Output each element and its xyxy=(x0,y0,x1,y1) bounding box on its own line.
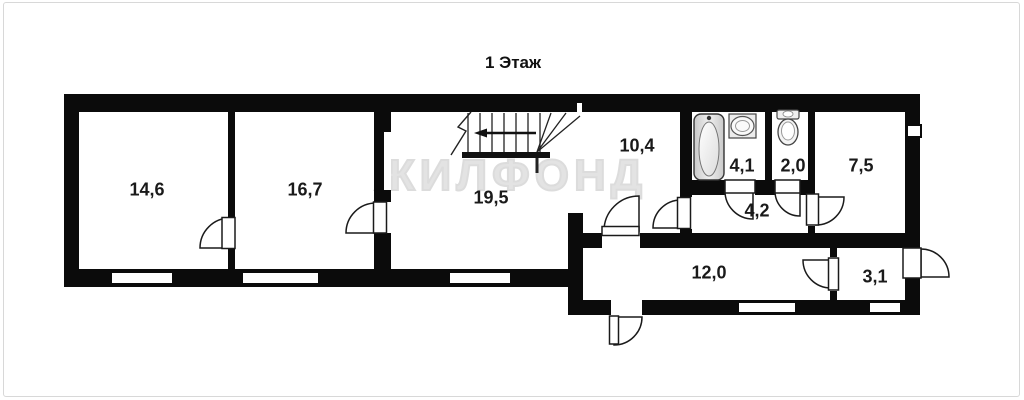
bathtub-icon xyxy=(694,114,724,180)
doorway-14-6 xyxy=(227,217,236,249)
page-title: 1 Этаж xyxy=(485,53,541,73)
door-arc-3-1-exterior xyxy=(921,249,949,277)
wall-extension-left xyxy=(568,213,583,315)
window-12-0 xyxy=(739,301,795,314)
door-arc-7-5 xyxy=(816,197,844,225)
watermark: ЖИЛФОНД xyxy=(375,151,647,201)
room-label-4-2: 4,2 xyxy=(744,201,769,222)
stair-break-line xyxy=(451,112,471,155)
doorway-4-1 xyxy=(725,179,755,196)
wall-niche-16-7-19-5 xyxy=(384,132,391,190)
room-label-12-0: 12,0 xyxy=(691,263,726,284)
floor-plan: 1 Этаж ЖИЛФОНД xyxy=(0,0,1024,400)
window-14-6 xyxy=(112,271,172,285)
wall-outer-top xyxy=(64,94,920,112)
room-label-16-7: 16,7 xyxy=(287,180,322,201)
room-label-3-1: 3,1 xyxy=(862,267,887,288)
wall-notch-top xyxy=(577,103,582,112)
doorway-3-1-exterior xyxy=(905,248,920,278)
wall-outer-left xyxy=(64,94,79,287)
window-19-5 xyxy=(450,271,510,285)
doorway-7-5 xyxy=(807,194,816,226)
door-leaf-entrance xyxy=(610,316,619,344)
door-arc-16-7 xyxy=(346,203,376,233)
window-3-1 xyxy=(870,301,900,314)
room-label-2-0: 2,0 xyxy=(780,156,805,177)
doorway-hall-4-2 xyxy=(679,197,693,229)
room-label-10-4: 10,4 xyxy=(619,136,654,157)
doorway-entrance xyxy=(611,298,642,316)
winder-tread xyxy=(537,113,551,152)
door-arc-hall-4-2 xyxy=(653,200,681,228)
doorway-2-0 xyxy=(775,179,800,196)
winder-tread xyxy=(537,113,566,152)
wall-4-1-2-0 xyxy=(765,112,772,180)
room-label-7-5: 7,5 xyxy=(848,156,873,177)
sink-icon xyxy=(729,114,756,138)
toilet-icon xyxy=(777,110,799,145)
doorway-16-7 xyxy=(373,202,392,233)
room-label-4-1: 4,1 xyxy=(729,156,754,177)
door-arc-14-6 xyxy=(200,218,230,248)
doorway-corridor xyxy=(602,232,640,249)
door-arc-entrance xyxy=(614,317,642,345)
room-label-14-6: 14,6 xyxy=(129,180,164,201)
door-arc-corridor xyxy=(604,196,639,231)
doorway-3-1 xyxy=(829,257,838,291)
winder-tread xyxy=(537,116,580,152)
door-arc-3-1 xyxy=(803,260,831,288)
stair-direction-arrow xyxy=(474,129,536,138)
room-label-19-5: 19,5 xyxy=(473,188,508,209)
vent-niche-right-wall xyxy=(906,124,922,138)
window-16-7 xyxy=(243,271,318,285)
